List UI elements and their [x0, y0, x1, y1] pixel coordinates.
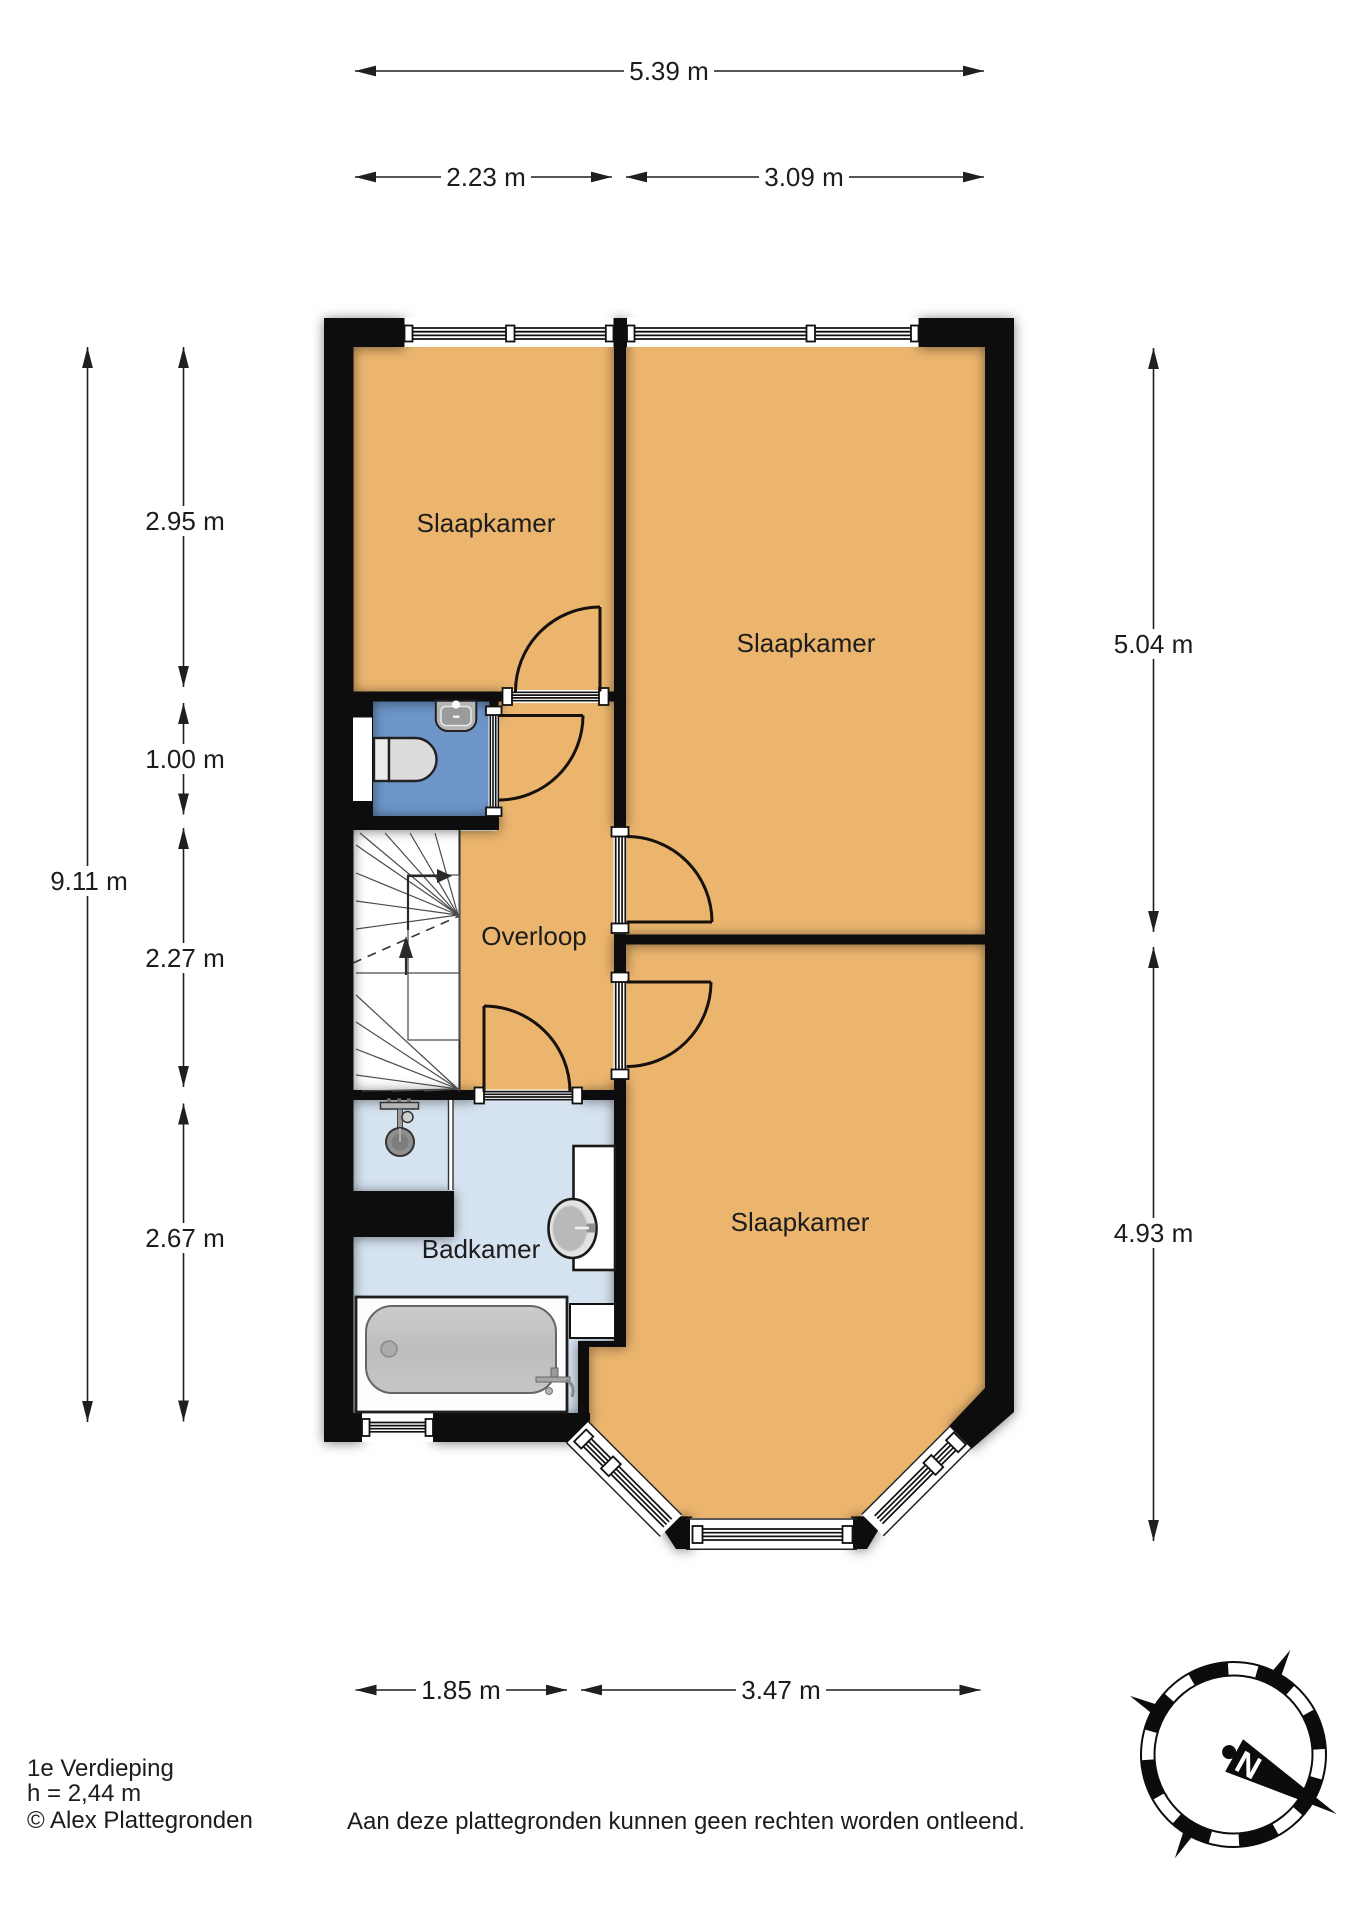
- svg-text:Slaapkamer: Slaapkamer: [731, 1207, 870, 1237]
- svg-text:Badkamer: Badkamer: [422, 1234, 541, 1264]
- svg-text:© Alex Plattegronden: © Alex Plattegronden: [27, 1807, 253, 1834]
- svg-text:Slaapkamer: Slaapkamer: [417, 508, 556, 538]
- svg-text:5.39 m: 5.39 m: [629, 56, 709, 86]
- svg-text:5.04 m: 5.04 m: [1114, 629, 1194, 659]
- svg-text:Aan deze plattegronden kunnen: Aan deze plattegronden kunnen geen recht…: [347, 1808, 1025, 1835]
- svg-text:9.11 m: 9.11 m: [50, 866, 128, 896]
- svg-text:3.09 m: 3.09 m: [764, 162, 844, 192]
- svg-text:Slaapkamer: Slaapkamer: [737, 628, 876, 658]
- svg-text:1e Verdieping: 1e Verdieping: [27, 1755, 174, 1782]
- svg-text:2.27 m: 2.27 m: [145, 943, 225, 973]
- svg-text:1.00 m: 1.00 m: [145, 744, 225, 774]
- svg-text:2.67 m: 2.67 m: [145, 1223, 225, 1253]
- svg-text:h = 2,44 m: h = 2,44 m: [27, 1780, 141, 1807]
- svg-text:3.47 m: 3.47 m: [741, 1675, 821, 1705]
- svg-text:2.95 m: 2.95 m: [145, 506, 225, 536]
- svg-text:2.23 m: 2.23 m: [446, 162, 526, 192]
- svg-text:4.93 m: 4.93 m: [1114, 1218, 1194, 1248]
- svg-text:1.85 m: 1.85 m: [421, 1675, 501, 1705]
- svg-text:Overloop: Overloop: [481, 921, 587, 951]
